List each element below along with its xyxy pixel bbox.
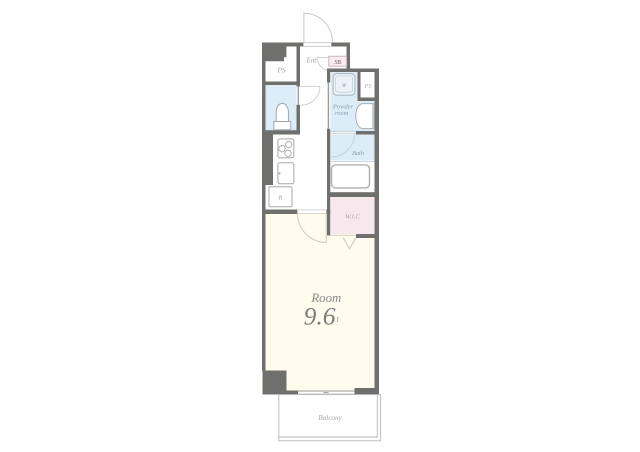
svg-text:room: room — [335, 110, 349, 117]
svg-text:Bath: Bath — [352, 150, 364, 157]
svg-text:PS: PS — [276, 66, 286, 75]
svg-text:R: R — [278, 196, 283, 202]
svg-text:PS: PS — [363, 83, 372, 90]
svg-text:9.6: 9.6 — [304, 302, 336, 331]
svg-text:Ent: Ent — [306, 57, 318, 65]
svg-text:SB: SB — [334, 60, 341, 66]
svg-text:Balcony: Balcony — [318, 414, 342, 422]
svg-text:W: W — [342, 83, 347, 89]
svg-text:W.I.C: W.I.C — [345, 214, 360, 221]
